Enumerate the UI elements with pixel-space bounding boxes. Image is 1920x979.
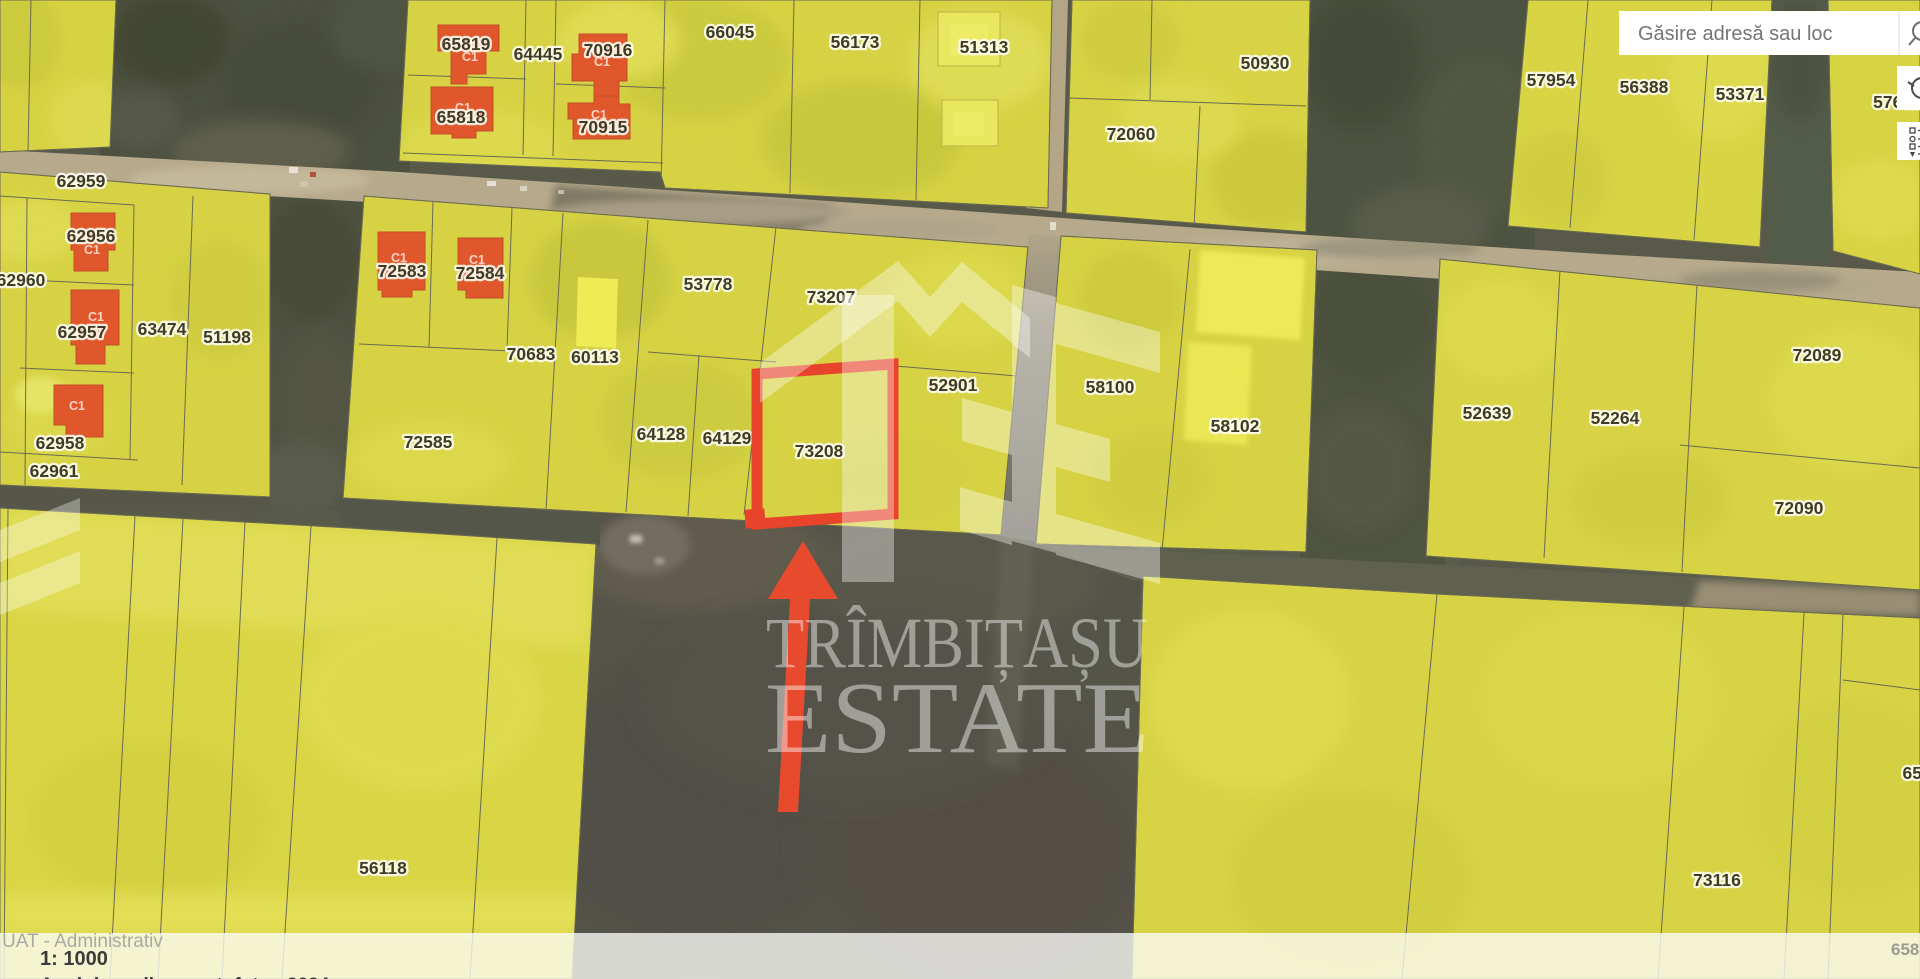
svg-text:56388: 56388 — [1620, 77, 1669, 97]
svg-text:62957: 62957 — [58, 322, 107, 342]
svg-text:Găsire adresă sau loc: Găsire adresă sau loc — [1638, 23, 1833, 45]
svg-text:62960: 62960 — [0, 270, 46, 290]
svg-text:52901: 52901 — [929, 375, 978, 395]
svg-text:52639: 52639 — [1463, 403, 1512, 423]
svg-text:50930: 50930 — [1241, 53, 1290, 73]
svg-text:51313: 51313 — [960, 37, 1009, 57]
svg-text:53778: 53778 — [684, 274, 733, 294]
svg-text:58102: 58102 — [1211, 416, 1260, 436]
svg-text:73116: 73116 — [1693, 870, 1741, 890]
svg-text:Anul de realizare ortofoto : 2: Anul de realizare ortofoto : 2024 — [40, 975, 330, 979]
svg-text:C1: C1 — [594, 55, 610, 69]
svg-text:6581: 6581 — [1903, 763, 1920, 783]
svg-text:72584: 72584 — [456, 263, 505, 283]
svg-text:58100: 58100 — [1086, 377, 1135, 397]
svg-text:C1: C1 — [69, 399, 85, 413]
svg-text:ESTATE: ESTATE — [765, 662, 1149, 775]
svg-text:1: 1000: 1: 1000 — [40, 948, 108, 970]
svg-text:64445: 64445 — [514, 44, 563, 64]
svg-text:60113: 60113 — [571, 347, 619, 367]
svg-text:57954: 57954 — [1527, 70, 1576, 90]
svg-text:62958: 62958 — [36, 433, 85, 453]
svg-text:72089: 72089 — [1793, 345, 1842, 365]
svg-text:6581: 6581 — [1891, 940, 1920, 959]
svg-text:C1: C1 — [84, 243, 100, 257]
svg-text:62959: 62959 — [57, 171, 106, 191]
svg-text:72583: 72583 — [378, 261, 427, 281]
svg-text:56173: 56173 — [831, 32, 880, 52]
svg-text:62961: 62961 — [30, 461, 79, 481]
svg-text:70915: 70915 — [579, 117, 628, 137]
svg-text:72090: 72090 — [1775, 498, 1824, 518]
svg-text:64129: 64129 — [703, 428, 752, 448]
svg-text:65818: 65818 — [437, 107, 486, 127]
svg-text:66045: 66045 — [706, 22, 755, 42]
svg-text:73208: 73208 — [795, 441, 844, 461]
svg-text:64128: 64128 — [637, 424, 686, 444]
svg-text:C1: C1 — [462, 50, 478, 64]
svg-text:72060: 72060 — [1107, 124, 1156, 144]
svg-text:72585: 72585 — [404, 432, 453, 452]
svg-text:52264: 52264 — [1591, 408, 1640, 428]
svg-text:70683: 70683 — [507, 344, 556, 364]
svg-text:51198: 51198 — [203, 327, 251, 347]
svg-text:53371: 53371 — [1716, 84, 1765, 104]
svg-text:56118: 56118 — [359, 858, 407, 878]
svg-text:63474: 63474 — [138, 319, 187, 339]
